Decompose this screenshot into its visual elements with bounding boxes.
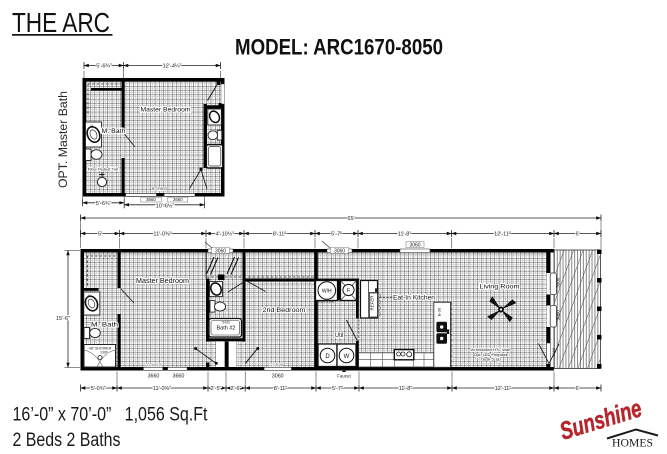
svg-text:11'-0⅜": 11'-0⅜" (153, 386, 171, 392)
svg-text:5’-6¾”: 5’-6¾” (96, 201, 112, 207)
svg-text:2'-6": 2'-6" (231, 386, 242, 392)
svg-text:MODEL: ARC1670-8050: MODEL: ARC1670-8050 (235, 35, 443, 60)
svg-text:3060: 3060 (334, 248, 345, 254)
svg-text:M. Bath: M. Bath (91, 322, 118, 329)
svg-text:5'-7": 5'-7" (331, 232, 342, 238)
svg-text:5': 5' (98, 232, 102, 238)
svg-text:5'-7": 5'-7" (332, 386, 343, 392)
svg-text:3060: 3060 (556, 310, 561, 321)
svg-text:11'-0⅜": 11'-0⅜" (153, 232, 171, 238)
svg-text:15'-6": 15'-6" (56, 316, 70, 322)
svg-text:Faucet: Faucet (337, 374, 351, 379)
svg-text:M. Bath: M. Bath (102, 128, 126, 135)
svg-text:10’-6½”: 10’-6½” (156, 202, 175, 209)
svg-text:Living Room: Living Room (480, 284, 520, 291)
svg-text:12'-11": 12'-11" (494, 232, 511, 238)
svg-text:W: W (344, 354, 350, 360)
svg-text:2'-5": 2'-5" (211, 386, 222, 392)
svg-text:HOMES: HOMES (612, 438, 653, 450)
svg-text:3660: 3660 (173, 197, 183, 202)
svg-text:5'-0¾": 5'-0¾" (91, 386, 107, 392)
svg-text:D: D (325, 354, 330, 360)
svg-text:REFER: REFER (370, 296, 375, 311)
svg-text:1-DR355: 1-DR355 (271, 363, 284, 367)
svg-text:Desk 5' Up: Desk 5' Up (481, 357, 501, 362)
svg-text:3660: 3660 (146, 197, 156, 202)
svg-text:3060: 3060 (272, 374, 284, 380)
svg-text:Fiber Pedest Tub: Fiber Pedest Tub (88, 167, 119, 172)
svg-text:5430: 5430 (222, 321, 230, 325)
svg-text:3660: 3660 (148, 374, 160, 380)
svg-text:2 Beds 2 Baths: 2 Beds 2 Baths (13, 430, 121, 451)
svg-text:12'-11": 12'-11" (495, 386, 512, 392)
svg-text:Bath #2: Bath #2 (217, 326, 236, 332)
svg-text:11'-8": 11'-8" (399, 386, 413, 392)
svg-text:3660: 3660 (173, 374, 185, 380)
svg-text:12’-4¼”: 12’-4¼” (163, 64, 182, 70)
svg-text:8'-11": 8'-11" (273, 232, 287, 238)
svg-text:16’-0” x 70’-0” 1,056 Sq.Ft: 16’-0” x 70’-0” 1,056 Sq.Ft (13, 405, 209, 426)
svg-text:3060: 3060 (409, 242, 420, 248)
svg-text:1-CW4535: 1-CW4535 (146, 363, 161, 367)
svg-text:65': 65' (347, 216, 354, 222)
svg-text:2nd Bedroom: 2nd Bedroom (263, 307, 306, 314)
svg-text:3000: 3000 (556, 277, 561, 288)
svg-text:3060: 3060 (215, 248, 226, 254)
svg-text:4'-10½": 4'-10½" (216, 231, 235, 238)
svg-text:Master Bedroom: Master Bedroom (141, 108, 191, 114)
svg-text:Eat-In Kitchen: Eat-In Kitchen (393, 295, 435, 302)
svg-text:5’-6¾”: 5’-6¾” (96, 64, 112, 70)
svg-text:11'-8": 11'-8" (398, 232, 412, 238)
svg-text:OPT. Master Bath: OPT. Master Bath (56, 91, 70, 188)
svg-text:W/H: W/H (322, 289, 332, 295)
svg-text:Master Bedroom: Master Bedroom (136, 278, 189, 285)
svg-text:8'-11": 8'-11" (274, 386, 288, 392)
svg-text:6': 6' (575, 386, 579, 392)
svg-text:6': 6' (575, 232, 579, 238)
svg-text:Util: Util (335, 333, 344, 339)
svg-text:B-30: B-30 (437, 307, 442, 316)
svg-text:THE ARC: THE ARC (12, 7, 110, 38)
svg-text:1300: 1300 (100, 351, 108, 355)
svg-text:B-CR833: B-CR833 (152, 187, 167, 191)
